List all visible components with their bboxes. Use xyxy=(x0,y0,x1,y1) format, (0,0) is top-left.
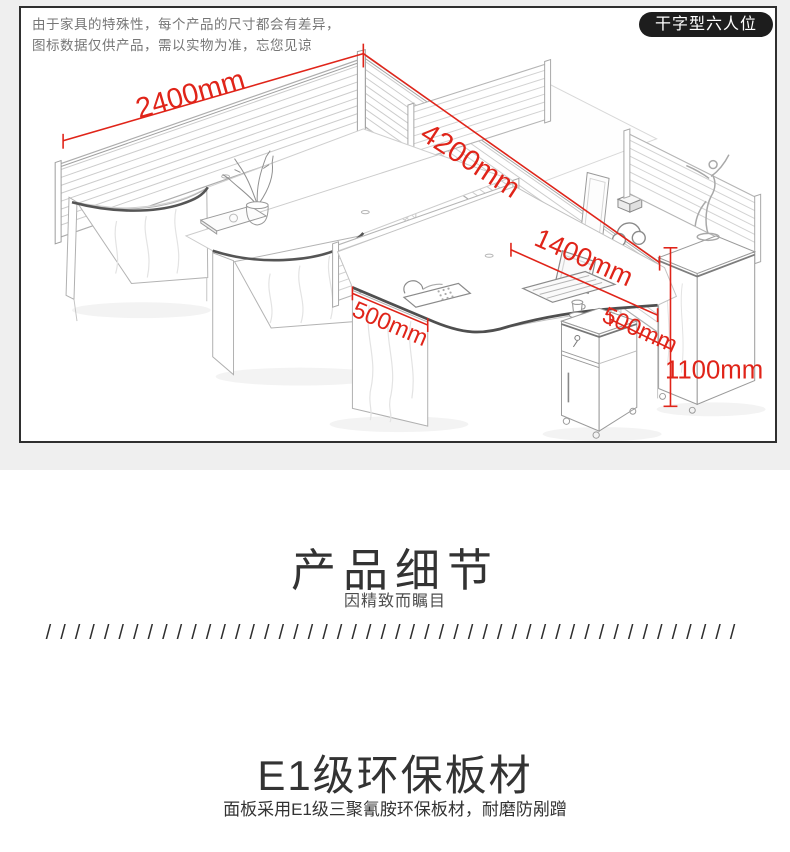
board-title: E1级环保板材 xyxy=(0,742,790,803)
office-desks-illustration: 2400mm 4200mm 1400mm 500mm 500mm 1100mm xyxy=(21,8,775,441)
product-detail-page: 2400mm 4200mm 1400mm 500mm 500mm 1100mm … xyxy=(0,0,790,852)
right-cabinet xyxy=(659,236,755,413)
disclaimer-line1: 由于家具的特殊性，每个产品的尺寸都会有差异， xyxy=(32,14,340,35)
hero-section: 2400mm 4200mm 1400mm 500mm 500mm 1100mm … xyxy=(0,0,790,470)
layout-type-badge: 干字型六人位 xyxy=(639,12,773,37)
disclaimer-line2: 图标数据仅供产品，需以实物为准，忘您见谅 xyxy=(32,35,340,56)
drawing-frame: 2400mm 4200mm 1400mm 500mm 500mm 1100mm … xyxy=(19,6,777,443)
disclaimer-text: 由于家具的特殊性，每个产品的尺寸都会有差异， 图标数据仅供产品，需以实物为准，忘… xyxy=(32,14,340,56)
slash-divider: ////////////////////////////////////////… xyxy=(0,622,790,652)
section-subtitle: 因精致而瞩目 xyxy=(0,587,790,611)
screen-right-end xyxy=(624,129,761,264)
label-1100: 1100mm xyxy=(665,357,763,385)
board-desc-line1: 面板采用E1级三聚氰胺环保板材，耐磨防剐蹭 xyxy=(223,800,567,819)
board-description: 面板采用E1级三聚氰胺环保板材，耐磨防剐蹭 不易受损经防火处理 耐高温 xyxy=(0,796,790,852)
